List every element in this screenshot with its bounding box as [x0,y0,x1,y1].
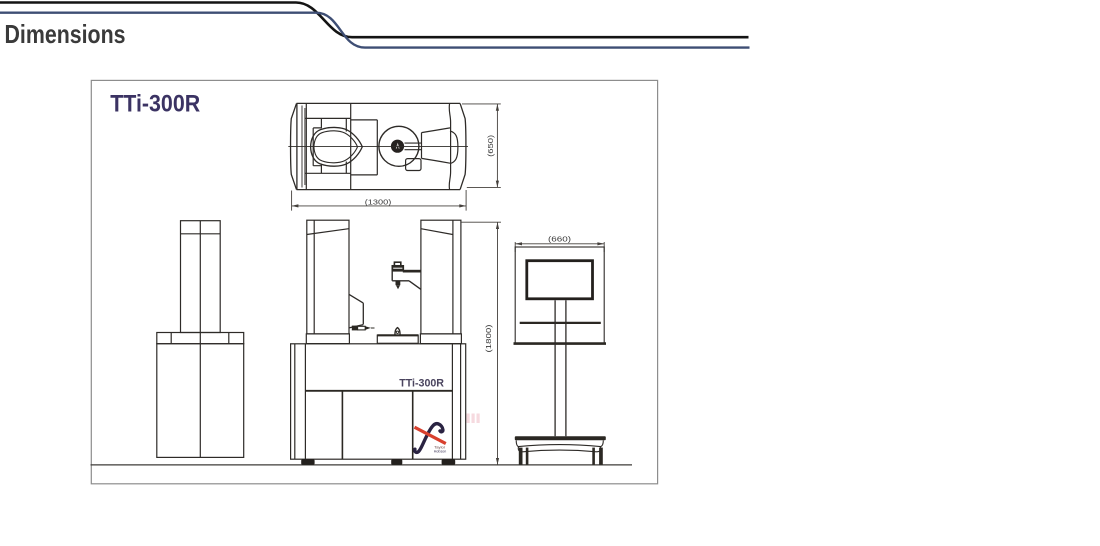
svg-text:TTi-300R: TTi-300R [110,91,200,118]
svg-text:Dimensions: Dimensions [5,19,126,49]
svg-text:(1800): (1800) [484,324,493,353]
svg-text:(660): (660) [548,234,572,243]
svg-text:(650): (650) [488,135,495,157]
svg-text:Hobson: Hobson [434,449,447,453]
svg-text:TTi-300R: TTi-300R [399,377,444,389]
svg-text:(1300): (1300) [365,200,392,207]
